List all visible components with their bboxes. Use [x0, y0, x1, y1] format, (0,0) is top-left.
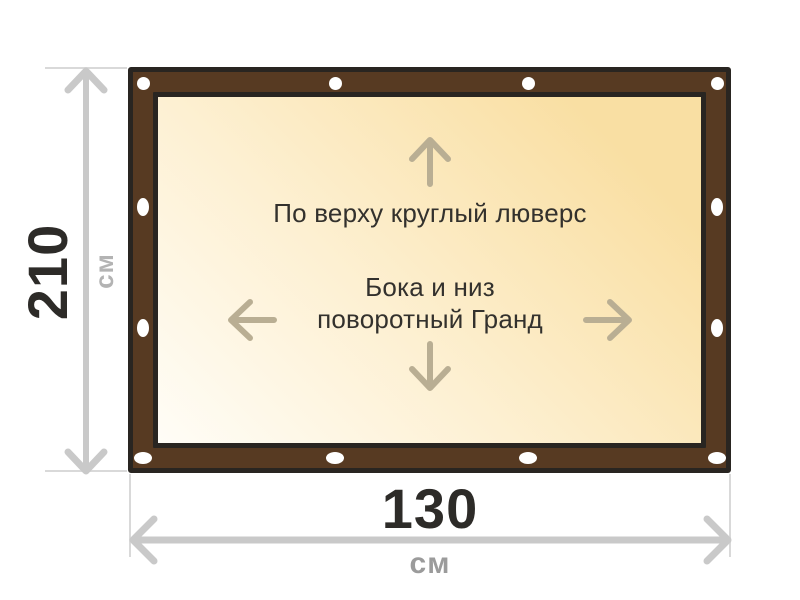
height-unit-label: см — [89, 221, 119, 321]
annotation-line1: Бока и низ — [180, 271, 680, 303]
banner-canvas — [153, 92, 706, 448]
grommet-icon — [326, 452, 344, 464]
grommet-icon — [134, 452, 152, 464]
banner-size-diagram: По верху круглый люверс Бока и низ повор… — [0, 0, 800, 600]
grommet-icon — [711, 77, 724, 90]
grommet-icon — [329, 77, 342, 90]
grommet-icon — [519, 452, 537, 464]
annotation-sides-bottom: Бока и низ поворотный Гранд — [180, 271, 680, 335]
width-arrowhead-right-icon — [707, 519, 728, 561]
grommet-icon — [137, 319, 149, 337]
grommet-icon — [137, 198, 149, 216]
banner-frame — [128, 67, 731, 473]
grommet-icon — [522, 77, 535, 90]
annotation-top-grommet: По верху круглый люверс — [180, 198, 680, 229]
height-value-label: 210 — [18, 172, 78, 372]
height-arrowhead-up-icon — [68, 71, 104, 90]
height-arrowhead-down-icon — [68, 452, 104, 471]
width-value-label: 130 — [330, 481, 530, 537]
annotation-line2: поворотный Гранд — [180, 303, 680, 335]
grommet-icon — [137, 77, 150, 90]
grommet-icon — [711, 198, 723, 216]
grommet-icon — [711, 319, 723, 337]
grommet-icon — [708, 452, 726, 464]
width-unit-label: см — [330, 547, 530, 581]
width-arrowhead-left-icon — [133, 519, 154, 561]
